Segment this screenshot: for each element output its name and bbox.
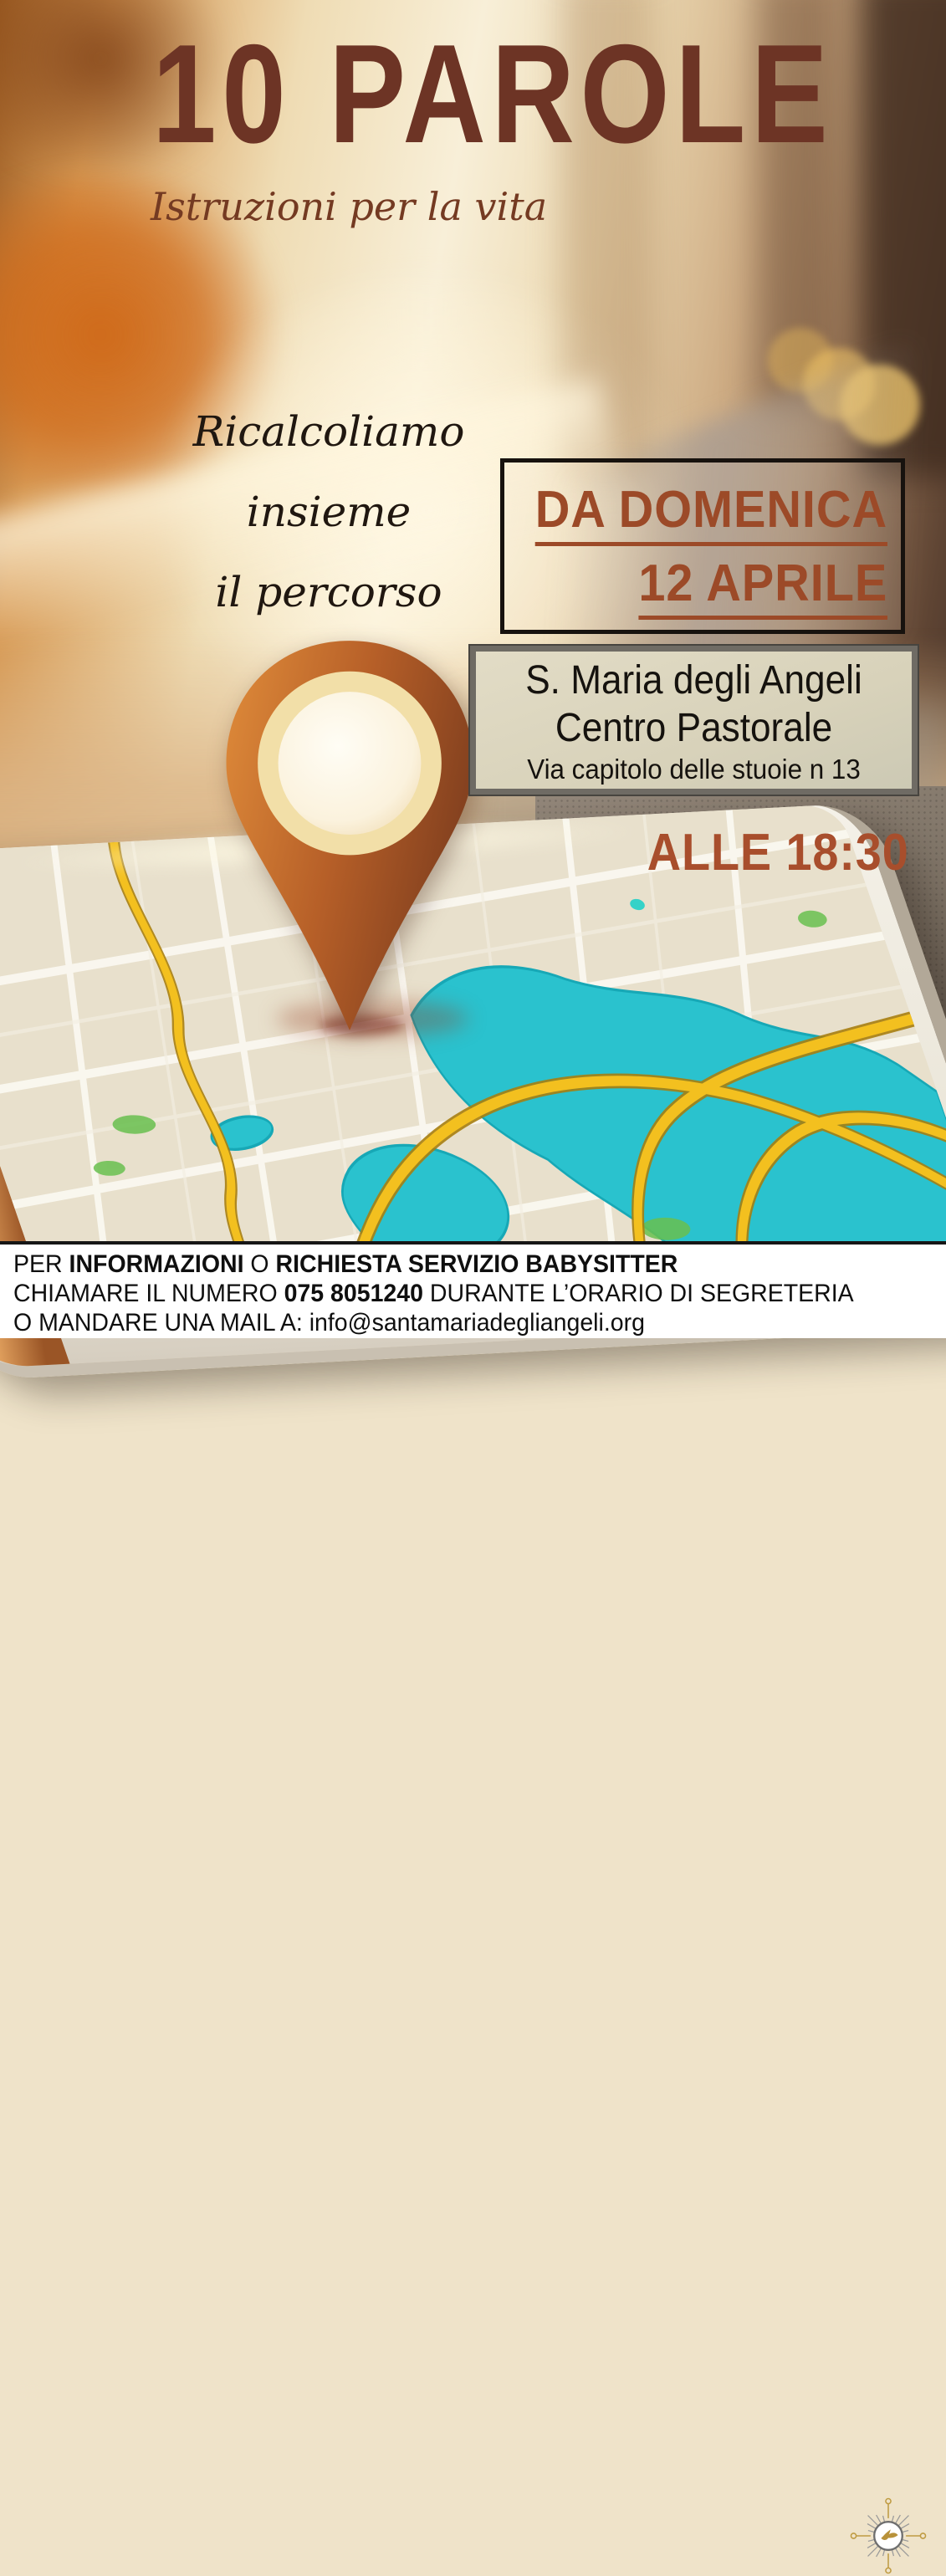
- venue-center: Centro Pastorale: [493, 704, 894, 752]
- page-title: 10 PAROLE: [152, 23, 833, 164]
- event-time: ALLE 18:30: [647, 823, 909, 882]
- footer-line-1: PER INFORMAZIONI O RICHIESTA SERVIZIO BA…: [13, 1250, 854, 1279]
- footer-text: PER INFORMAZIONI O RICHIESTA SERVIZIO BA…: [13, 1250, 898, 1337]
- tagline: Ricalcoliamo insieme il percorso: [157, 391, 500, 632]
- tagline-line-1: Ricalcoliamo: [157, 391, 500, 472]
- date-line-2: 12 APRILE: [504, 558, 887, 620]
- tagline-line-2: insieme: [157, 472, 500, 552]
- tagline-line-3: il percorso: [157, 552, 500, 632]
- location-pin-icon: [219, 636, 480, 1035]
- venue-name: S. Maria degli Angeli: [493, 657, 894, 704]
- footer-line-2: CHIAMARE IL NUMERO 075 8051240 DURANTE L…: [13, 1279, 854, 1308]
- subtitle: Istruzioni per la vita: [151, 184, 547, 229]
- venue-box: S. Maria degli Angeli Centro Pastorale V…: [470, 646, 918, 795]
- date-line-1: DA DOMENICA: [504, 484, 887, 546]
- poster: { "poster": { "title": "10 PAROLE", "sub…: [0, 0, 946, 1338]
- footer: PER INFORMAZIONI O RICHIESTA SERVIZIO BA…: [0, 1241, 946, 1338]
- dove-sunburst-logo-icon: [848, 2496, 928, 2576]
- date-box: DA DOMENICA 12 APRILE: [500, 458, 905, 634]
- footer-line-3: O MANDARE UNA MAIL A: info@santamariadeg…: [13, 1308, 854, 1337]
- venue-address: Via capitolo delle stuoie n 13: [487, 752, 901, 787]
